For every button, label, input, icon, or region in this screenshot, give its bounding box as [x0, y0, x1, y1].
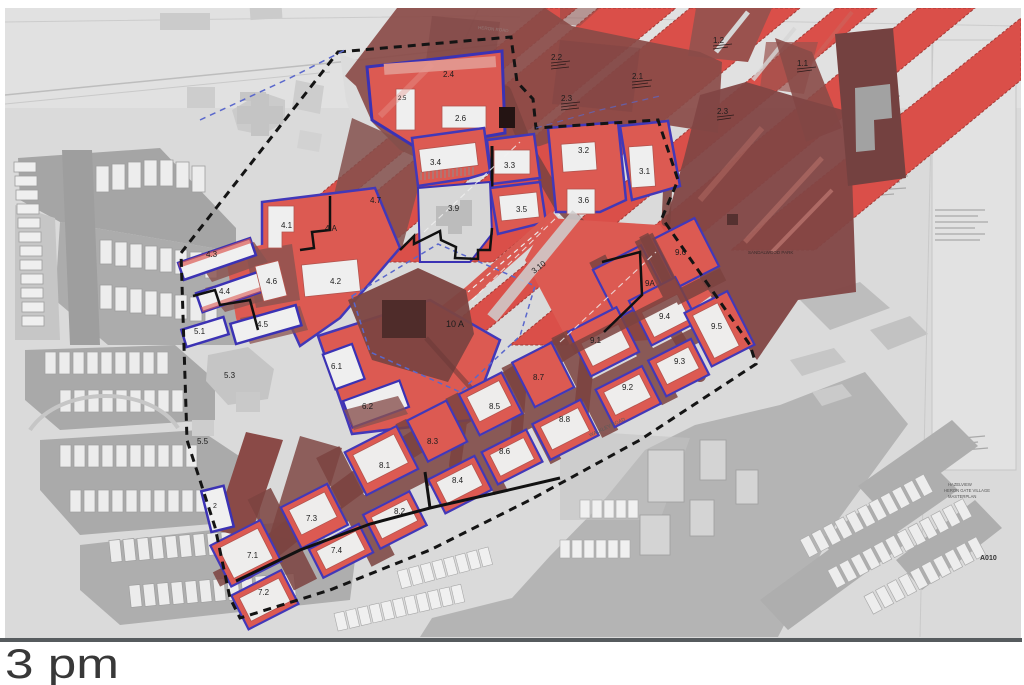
- svg-text:2.2: 2.2: [551, 53, 563, 62]
- svg-text:4.6: 4.6: [266, 277, 278, 286]
- svg-text:SANDALWOOD PARK: SANDALWOOD PARK: [748, 250, 793, 255]
- svg-text:2.4: 2.4: [443, 70, 455, 79]
- svg-text:MASTERPLAN: MASTERPLAN: [948, 494, 976, 499]
- svg-text:7.3: 7.3: [306, 514, 318, 523]
- svg-text:4.5: 4.5: [257, 320, 269, 329]
- svg-text:2.5: 2.5: [398, 96, 407, 102]
- svg-text:8.6: 8.6: [499, 447, 511, 456]
- svg-text:4.4: 4.4: [219, 287, 231, 296]
- svg-text:8.4: 8.4: [452, 476, 464, 485]
- svg-text:5.5: 5.5: [197, 437, 209, 446]
- svg-text:4.A: 4.A: [325, 224, 338, 233]
- svg-text:3.3: 3.3: [504, 161, 516, 170]
- svg-text:3.6: 3.6: [578, 196, 590, 205]
- svg-text:6.2: 6.2: [362, 402, 374, 411]
- svg-text:9.6: 9.6: [675, 248, 687, 257]
- svg-text:A010: A010: [980, 555, 997, 562]
- svg-text:2: 2: [213, 503, 217, 510]
- svg-text:2.1: 2.1: [632, 72, 644, 81]
- svg-text:1.1: 1.1: [797, 59, 809, 68]
- svg-text:8.2: 8.2: [394, 507, 406, 516]
- svg-text:HERON GATE VILLAGE: HERON GATE VILLAGE: [944, 488, 990, 493]
- svg-text:9A: 9A: [645, 279, 655, 288]
- svg-text:8.5: 8.5: [489, 402, 501, 411]
- svg-text:2.3: 2.3: [561, 94, 573, 103]
- svg-text:9.3: 9.3: [674, 357, 686, 366]
- svg-text:8.8: 8.8: [559, 415, 571, 424]
- svg-text:9.1: 9.1: [590, 336, 602, 345]
- svg-text:4.3: 4.3: [206, 250, 218, 259]
- svg-text:3.5: 3.5: [516, 205, 528, 214]
- svg-text:6.1: 6.1: [331, 362, 343, 371]
- svg-text:8.7: 8.7: [533, 373, 545, 382]
- svg-text:2.3: 2.3: [717, 107, 729, 116]
- svg-text:5.3: 5.3: [224, 371, 236, 380]
- svg-text:8.3: 8.3: [427, 437, 439, 446]
- svg-text:1.2: 1.2: [713, 36, 725, 45]
- svg-text:9.2: 9.2: [622, 383, 634, 392]
- svg-text:HAZELVIEW: HAZELVIEW: [948, 482, 972, 487]
- svg-text:7.1: 7.1: [247, 551, 259, 560]
- svg-text:3.1: 3.1: [639, 167, 651, 176]
- svg-text:7.2: 7.2: [258, 588, 270, 597]
- svg-text:4.2: 4.2: [330, 277, 342, 286]
- svg-text:3 pm: 3 pm: [5, 640, 119, 685]
- svg-text:5.1: 5.1: [194, 327, 206, 336]
- svg-text:9.4: 9.4: [659, 312, 671, 321]
- svg-text:9.5: 9.5: [711, 322, 723, 331]
- svg-text:2.6: 2.6: [455, 114, 467, 123]
- svg-text:8.1: 8.1: [379, 461, 391, 470]
- svg-text:3.2: 3.2: [578, 146, 590, 155]
- svg-text:10 A: 10 A: [446, 319, 464, 329]
- svg-text:4.7: 4.7: [370, 196, 382, 205]
- svg-text:3.4: 3.4: [430, 158, 442, 167]
- svg-text:3.9: 3.9: [448, 204, 460, 213]
- svg-text:4.1: 4.1: [281, 221, 293, 230]
- svg-text:7.4: 7.4: [331, 546, 343, 555]
